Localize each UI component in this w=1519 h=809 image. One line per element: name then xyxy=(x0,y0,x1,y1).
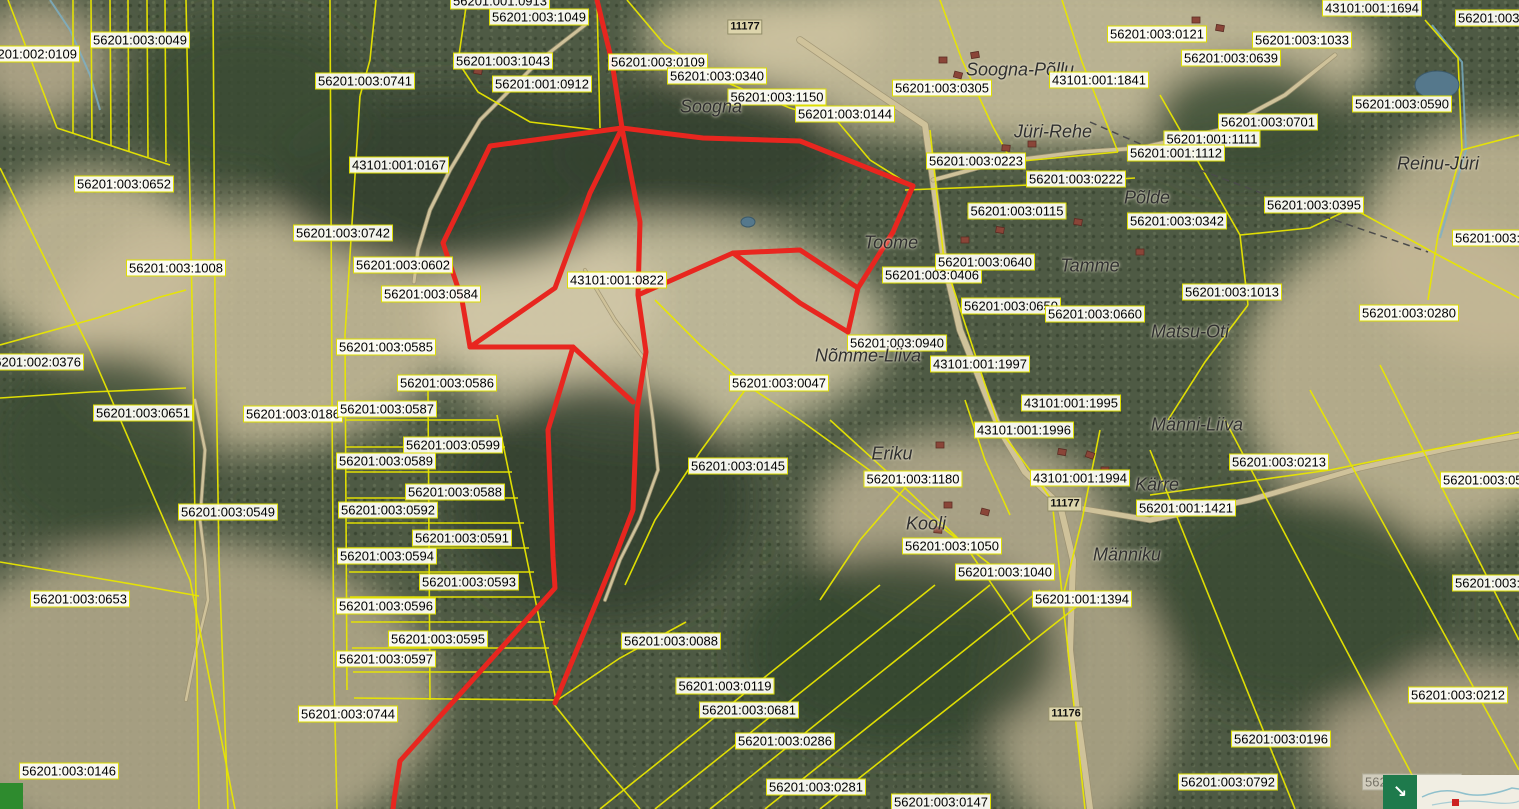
map-lines-layer xyxy=(0,0,1519,809)
overview-minimap[interactable] xyxy=(1417,775,1519,809)
map-canvas[interactable]: 56201:003:004956201:001:091356201:003:10… xyxy=(0,0,1519,809)
stream-lines xyxy=(50,0,1466,238)
parcel-boundary-lines xyxy=(0,0,1519,809)
field-patch xyxy=(0,783,23,809)
overview-map-toggle-button[interactable]: ↘ xyxy=(1383,775,1417,809)
road-lines xyxy=(186,25,1519,809)
minimap-location-marker xyxy=(1452,799,1459,806)
overview-map-widget: ↘ xyxy=(1383,775,1519,809)
